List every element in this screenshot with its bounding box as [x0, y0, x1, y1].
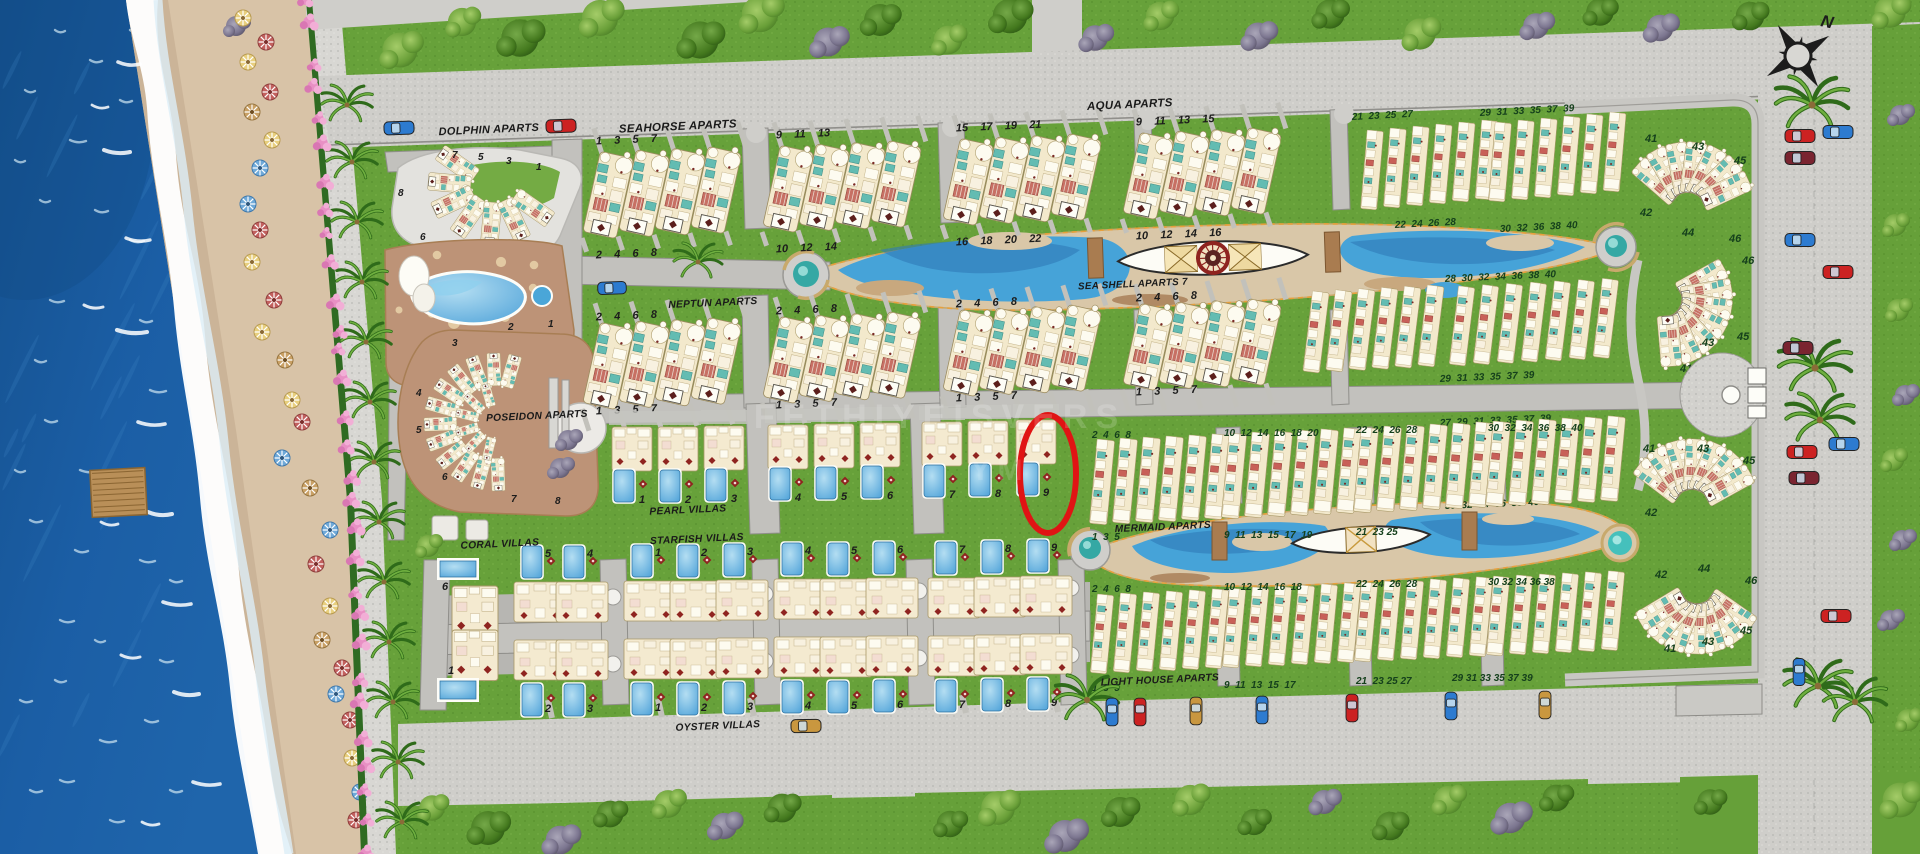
svg-text:7: 7	[511, 494, 517, 505]
svg-text:6: 6	[887, 490, 894, 502]
svg-text:3: 3	[747, 701, 753, 713]
svg-text:29 31 33 35 37 39: 29 31 33 35 37 39	[1451, 673, 1533, 684]
svg-text:45: 45	[1742, 455, 1756, 467]
svg-text:43: 43	[1696, 443, 1709, 455]
svg-text:41: 41	[1663, 643, 1676, 655]
svg-text:5: 5	[851, 700, 858, 712]
svg-text:4: 4	[794, 492, 801, 504]
svg-text:7: 7	[959, 544, 966, 556]
svg-text:8: 8	[398, 188, 404, 199]
svg-text:6: 6	[420, 232, 426, 243]
svg-text:3: 3	[731, 493, 737, 505]
svg-text:8: 8	[1005, 543, 1012, 555]
svg-text:1: 1	[536, 162, 542, 173]
svg-text:10 12 14 16 18: 10 12 14 16 18	[1224, 582, 1302, 593]
svg-text:3: 3	[506, 156, 512, 167]
svg-text:5: 5	[478, 152, 484, 163]
svg-text:21 23 25 27: 21 23 25 27	[1355, 676, 1412, 687]
svg-text:5: 5	[851, 545, 858, 557]
svg-text:8: 8	[995, 488, 1002, 500]
svg-text:3: 3	[587, 703, 593, 715]
svg-text:44: 44	[1697, 563, 1710, 575]
svg-text:43: 43	[1691, 141, 1704, 153]
svg-text:2: 2	[700, 702, 707, 714]
svg-text:9 11 13 15 17 19: 9 11 13 15 17 19	[1224, 530, 1313, 541]
svg-text:6: 6	[442, 581, 449, 593]
svg-text:30 32 34 36 38 40: 30 32 34 36 38 40	[1488, 423, 1583, 434]
svg-text:43: 43	[1701, 636, 1714, 648]
svg-text:6: 6	[442, 472, 448, 483]
svg-text:4: 4	[804, 700, 811, 712]
svg-text:1: 1	[448, 665, 454, 677]
svg-text:44: 44	[1681, 227, 1694, 239]
svg-text:7: 7	[949, 489, 956, 501]
svg-text:42: 42	[1639, 207, 1652, 219]
svg-text:3: 3	[452, 338, 458, 349]
svg-text:22 24 26 28: 22 24 26 28	[1355, 425, 1418, 436]
svg-text:4: 4	[804, 545, 811, 557]
svg-text:9 11 13: 9 11 13	[776, 127, 831, 141]
svg-text:22 24 26 28: 22 24 26 28	[1355, 579, 1418, 590]
svg-text:8: 8	[1005, 698, 1012, 710]
svg-text:2: 2	[700, 547, 707, 559]
svg-text:6: 6	[897, 699, 904, 711]
svg-text:2 4 6 8: 2 4 6 8	[1091, 584, 1131, 595]
svg-text:1: 1	[639, 494, 645, 506]
svg-text:4: 4	[586, 548, 593, 560]
svg-text:8: 8	[555, 496, 561, 507]
svg-text:21 23 25: 21 23 25	[1355, 527, 1398, 538]
svg-text:41: 41	[1644, 133, 1657, 145]
svg-text:41: 41	[1642, 443, 1655, 455]
svg-text:30 32 34 36 38: 30 32 34 36 38	[1488, 577, 1555, 588]
svg-text:42: 42	[1644, 507, 1657, 519]
svg-text:2: 2	[544, 703, 551, 715]
svg-text:1: 1	[655, 547, 661, 559]
svg-text:45: 45	[1736, 331, 1750, 343]
svg-text:43: 43	[1701, 337, 1714, 349]
svg-text:9: 9	[1043, 487, 1050, 499]
svg-text:46: 46	[1744, 575, 1758, 587]
svg-text:9: 9	[1051, 542, 1058, 554]
svg-text:46: 46	[1741, 255, 1755, 267]
svg-text:4: 4	[415, 388, 422, 399]
svg-text:5: 5	[545, 548, 552, 560]
svg-text:45: 45	[1739, 625, 1753, 637]
svg-text:9 11 13 15 17: 9 11 13 15 17	[1224, 680, 1296, 691]
svg-text:10 12 14 16 18 20: 10 12 14 16 18 20	[1224, 428, 1319, 439]
svg-text:46: 46	[1728, 233, 1742, 245]
svg-text:7: 7	[452, 150, 458, 161]
svg-text:42: 42	[1654, 569, 1667, 581]
svg-text:FETHIYEISVERS: FETHIYEISVERS	[754, 398, 1126, 436]
svg-text:1: 1	[655, 702, 661, 714]
svg-text:5: 5	[416, 425, 422, 436]
svg-text:2: 2	[507, 322, 514, 333]
svg-text:6: 6	[897, 544, 904, 556]
svg-text:5: 5	[841, 491, 848, 503]
svg-text:7: 7	[959, 699, 966, 711]
svg-text:1: 1	[548, 319, 554, 330]
svg-text:45: 45	[1733, 155, 1747, 167]
svg-text:YM: YM	[971, 454, 1030, 487]
svg-text:3: 3	[747, 546, 753, 558]
